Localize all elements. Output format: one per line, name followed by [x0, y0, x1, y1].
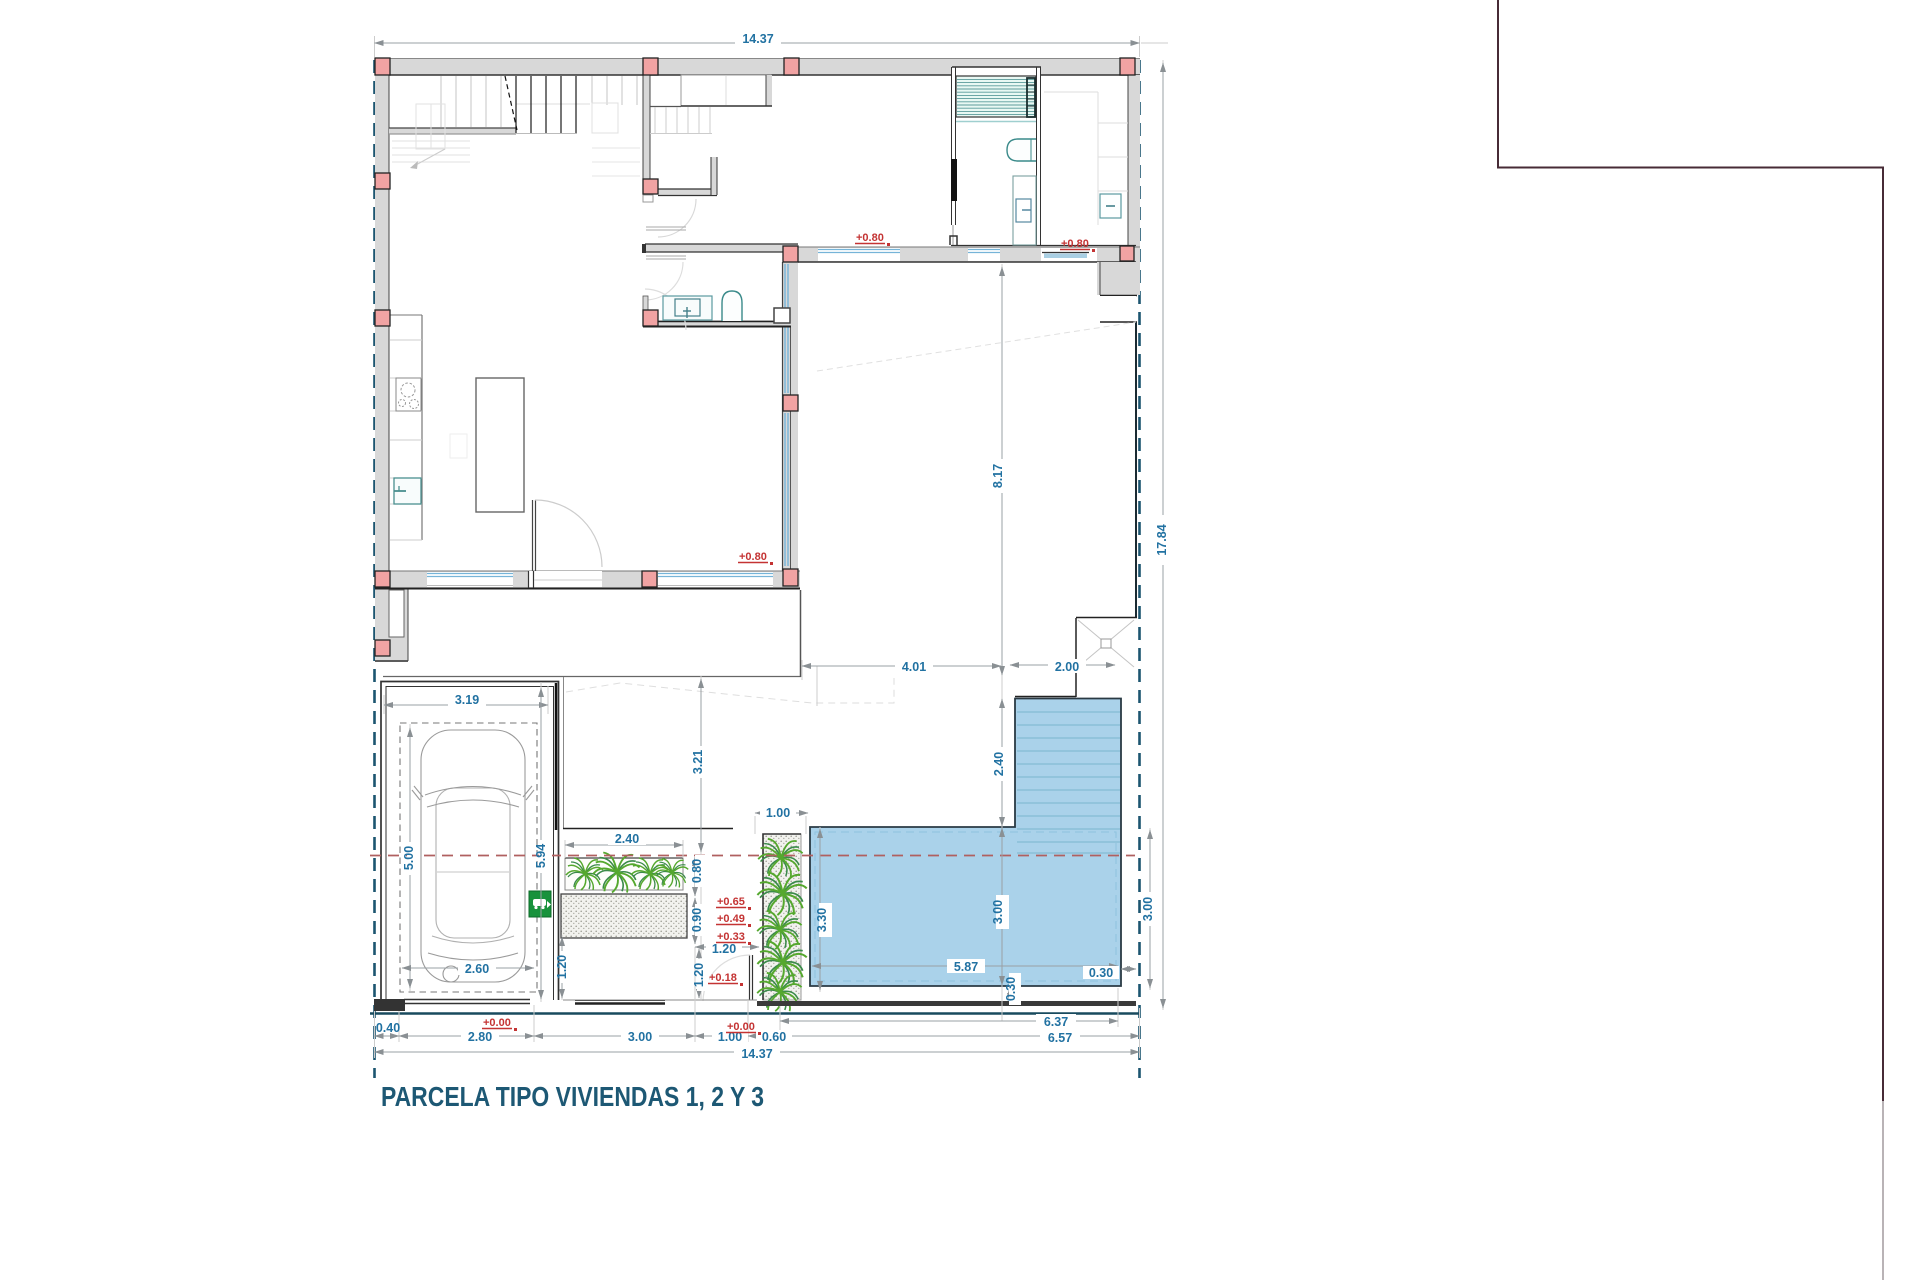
svg-text:0.80: 0.80 [690, 859, 704, 883]
svg-text:2.00: 2.00 [1055, 660, 1079, 674]
svg-text:3.00: 3.00 [1141, 897, 1155, 921]
svg-text:+0.80: +0.80 [1061, 238, 1089, 250]
svg-text:5.94: 5.94 [534, 844, 548, 868]
svg-text:+0.33: +0.33 [717, 931, 745, 943]
svg-text:4.01: 4.01 [902, 660, 926, 674]
svg-text:2.80: 2.80 [468, 1030, 492, 1044]
svg-text:+0.65: +0.65 [717, 896, 745, 908]
svg-text:0.30: 0.30 [1004, 977, 1018, 1001]
svg-text:2.60: 2.60 [465, 962, 489, 976]
svg-text:3.21: 3.21 [691, 750, 705, 774]
svg-text:3.00: 3.00 [991, 900, 1005, 924]
svg-text:14.37: 14.37 [741, 1047, 772, 1061]
svg-text:+0.18: +0.18 [709, 972, 737, 984]
svg-text:1.20: 1.20 [555, 955, 569, 979]
svg-text:1.20: 1.20 [712, 942, 736, 956]
svg-text:0.40: 0.40 [376, 1021, 400, 1035]
svg-text:0.90: 0.90 [690, 908, 704, 932]
svg-text:6.37: 6.37 [1044, 1015, 1068, 1029]
svg-text:1.20: 1.20 [692, 963, 706, 987]
svg-text:3.30: 3.30 [815, 908, 829, 932]
svg-text:1.00: 1.00 [766, 806, 790, 820]
svg-text:2.40: 2.40 [992, 752, 1006, 776]
svg-text:0.30: 0.30 [1089, 966, 1113, 980]
svg-text:17.84: 17.84 [1155, 524, 1169, 555]
svg-text:3.00: 3.00 [628, 1030, 652, 1044]
svg-text:+0.00: +0.00 [727, 1021, 755, 1033]
svg-text:+0.80: +0.80 [739, 551, 767, 563]
svg-text:+0.80: +0.80 [856, 232, 884, 244]
svg-text:5.00: 5.00 [402, 846, 416, 870]
svg-text:+0.00: +0.00 [483, 1017, 511, 1029]
svg-text:8.17: 8.17 [991, 464, 1005, 488]
svg-text:+0.49: +0.49 [717, 913, 745, 925]
svg-text:6.57: 6.57 [1048, 1031, 1072, 1045]
svg-text:14.37: 14.37 [742, 32, 773, 46]
svg-text:0.60: 0.60 [762, 1030, 786, 1044]
svg-text:2.40: 2.40 [615, 832, 639, 846]
svg-text:5.87: 5.87 [954, 960, 978, 974]
svg-text:3.19: 3.19 [455, 693, 479, 707]
svg-text:PARCELA TIPO VIVIENDAS 1, 2 Y: PARCELA TIPO VIVIENDAS 1, 2 Y 3 [381, 1081, 764, 1112]
